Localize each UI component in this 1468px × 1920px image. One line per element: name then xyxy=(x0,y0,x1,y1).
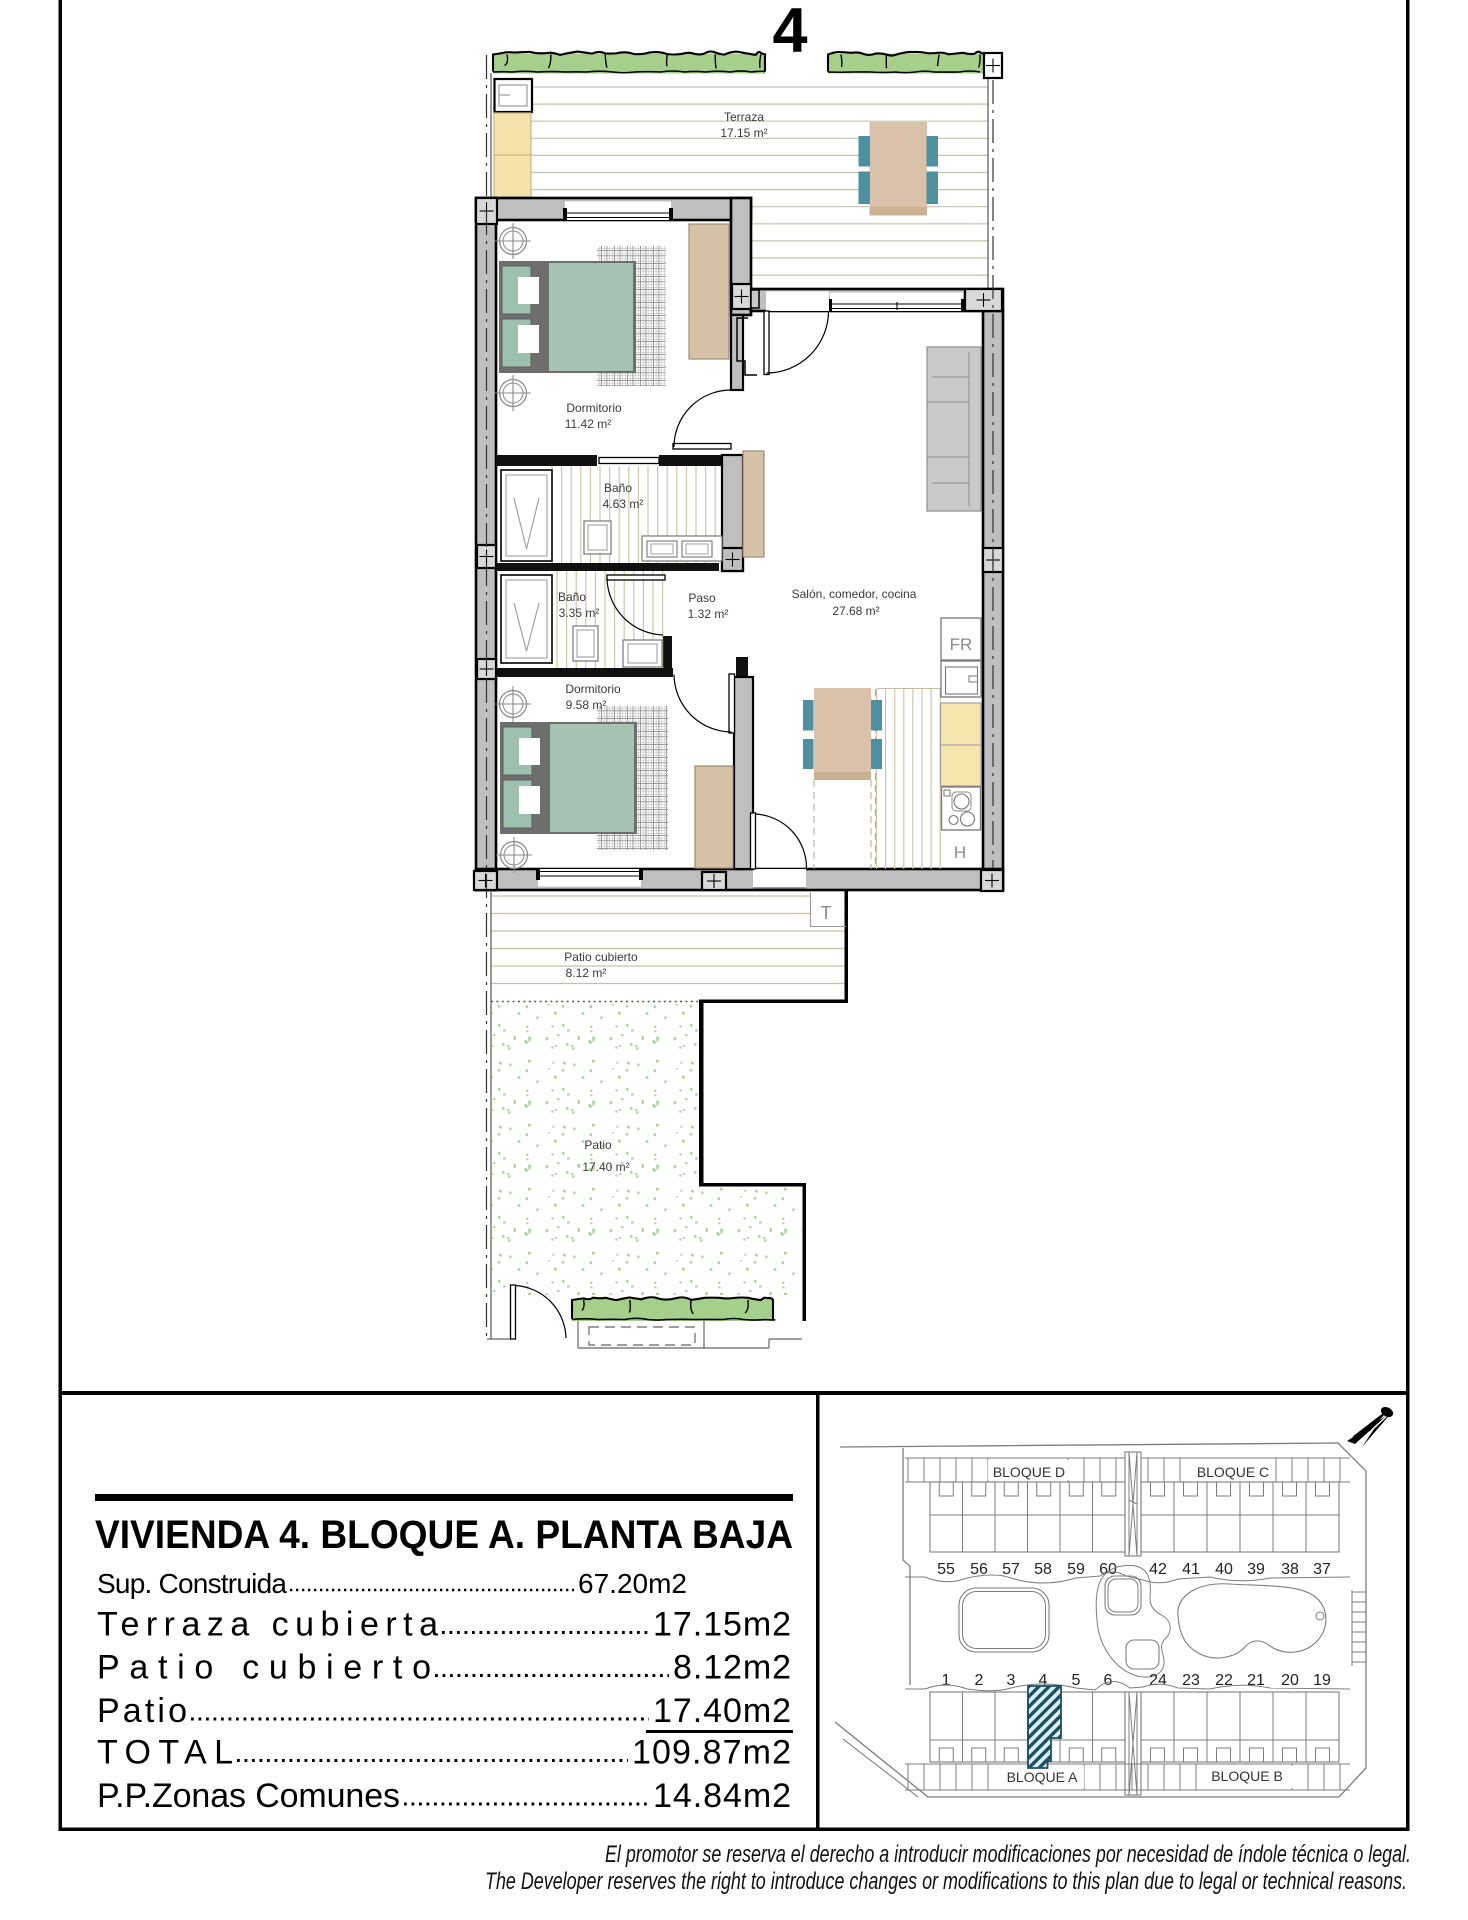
svg-text:55: 55 xyxy=(937,1561,955,1578)
svg-text:17.15m2: 17.15m2 xyxy=(653,1606,791,1644)
svg-text:1: 1 xyxy=(942,1672,951,1689)
svg-text:Paso: Paso xyxy=(688,591,716,605)
svg-text:37: 37 xyxy=(1313,1561,1331,1578)
svg-text:38: 38 xyxy=(1281,1561,1299,1578)
svg-text:3.35 m²: 3.35 m² xyxy=(559,606,600,620)
svg-text:57: 57 xyxy=(1002,1561,1020,1578)
svg-text:11.42 m²: 11.42 m² xyxy=(565,417,611,431)
svg-text:6: 6 xyxy=(1104,1672,1113,1689)
svg-text:23: 23 xyxy=(1182,1672,1200,1689)
svg-text:Baño: Baño xyxy=(604,481,632,495)
svg-text:BLOQUE A: BLOQUE A xyxy=(1007,1769,1078,1785)
svg-text:1.32 m²: 1.32 m² xyxy=(688,607,729,621)
svg-text:The Developer reserves the rig: The Developer reserves the right to intr… xyxy=(485,1868,1407,1895)
svg-text:67.20m2: 67.20m2 xyxy=(578,1568,687,1599)
svg-text:Baño: Baño xyxy=(558,590,586,604)
svg-text:El promotor se reserva el dere: El promotor se reserva el derecho a intr… xyxy=(605,1841,1411,1868)
svg-text:27.68 m²: 27.68 m² xyxy=(832,604,879,618)
svg-text:VIVIENDA 4. BLOQUE A. PLANTA B: VIVIENDA 4. BLOQUE A. PLANTA BAJA xyxy=(95,1513,793,1557)
svg-text:Patio cubierto: Patio cubierto xyxy=(564,950,638,964)
svg-text:P.P.Zonas Comunes: P.P.Zonas Comunes xyxy=(97,1777,400,1815)
svg-text:H: H xyxy=(954,843,966,862)
svg-text:BLOQUE B: BLOQUE B xyxy=(1211,1768,1283,1784)
svg-text:4.63 m²: 4.63 m² xyxy=(603,497,644,511)
svg-text:42: 42 xyxy=(1149,1561,1167,1578)
svg-text:109.87m2: 109.87m2 xyxy=(632,1734,791,1772)
svg-text:39: 39 xyxy=(1247,1561,1265,1578)
svg-text:8.12 m²: 8.12 m² xyxy=(566,966,607,980)
svg-text:14.84m2: 14.84m2 xyxy=(653,1777,791,1815)
svg-text:Salón, comedor, cocina: Salón, comedor, cocina xyxy=(792,587,917,601)
svg-text:Terraza: Terraza xyxy=(724,110,764,124)
svg-text:24: 24 xyxy=(1149,1672,1167,1689)
svg-text:Dormitorio: Dormitorio xyxy=(566,401,622,415)
svg-text:BLOQUE D: BLOQUE D xyxy=(993,1464,1065,1480)
svg-text:Patio: Patio xyxy=(584,1138,612,1152)
svg-text:17.40m2: 17.40m2 xyxy=(653,1692,791,1730)
svg-text:40: 40 xyxy=(1215,1561,1233,1578)
svg-text:BLOQUE C: BLOQUE C xyxy=(1197,1464,1269,1480)
svg-text:58: 58 xyxy=(1034,1561,1052,1578)
svg-text:5: 5 xyxy=(1072,1672,1081,1689)
svg-text:3: 3 xyxy=(1007,1672,1016,1689)
svg-text:Dormitorio: Dormitorio xyxy=(565,682,621,696)
svg-text:19: 19 xyxy=(1313,1672,1331,1689)
svg-text:2: 2 xyxy=(975,1672,984,1689)
svg-text:Sup. Construida: Sup. Construida xyxy=(97,1568,287,1599)
svg-text:59: 59 xyxy=(1067,1561,1085,1578)
svg-text:17.40 m²: 17.40 m² xyxy=(582,1160,629,1174)
svg-text:20: 20 xyxy=(1281,1672,1299,1689)
svg-text:8.12m2: 8.12m2 xyxy=(673,1649,791,1687)
svg-text:9.58 m²: 9.58 m² xyxy=(566,698,607,712)
svg-text:FR: FR xyxy=(950,635,973,654)
svg-text:T: T xyxy=(821,903,832,923)
svg-text:17.15 m²: 17.15 m² xyxy=(720,126,767,140)
svg-text:41: 41 xyxy=(1182,1561,1200,1578)
svg-text:4: 4 xyxy=(772,0,807,66)
